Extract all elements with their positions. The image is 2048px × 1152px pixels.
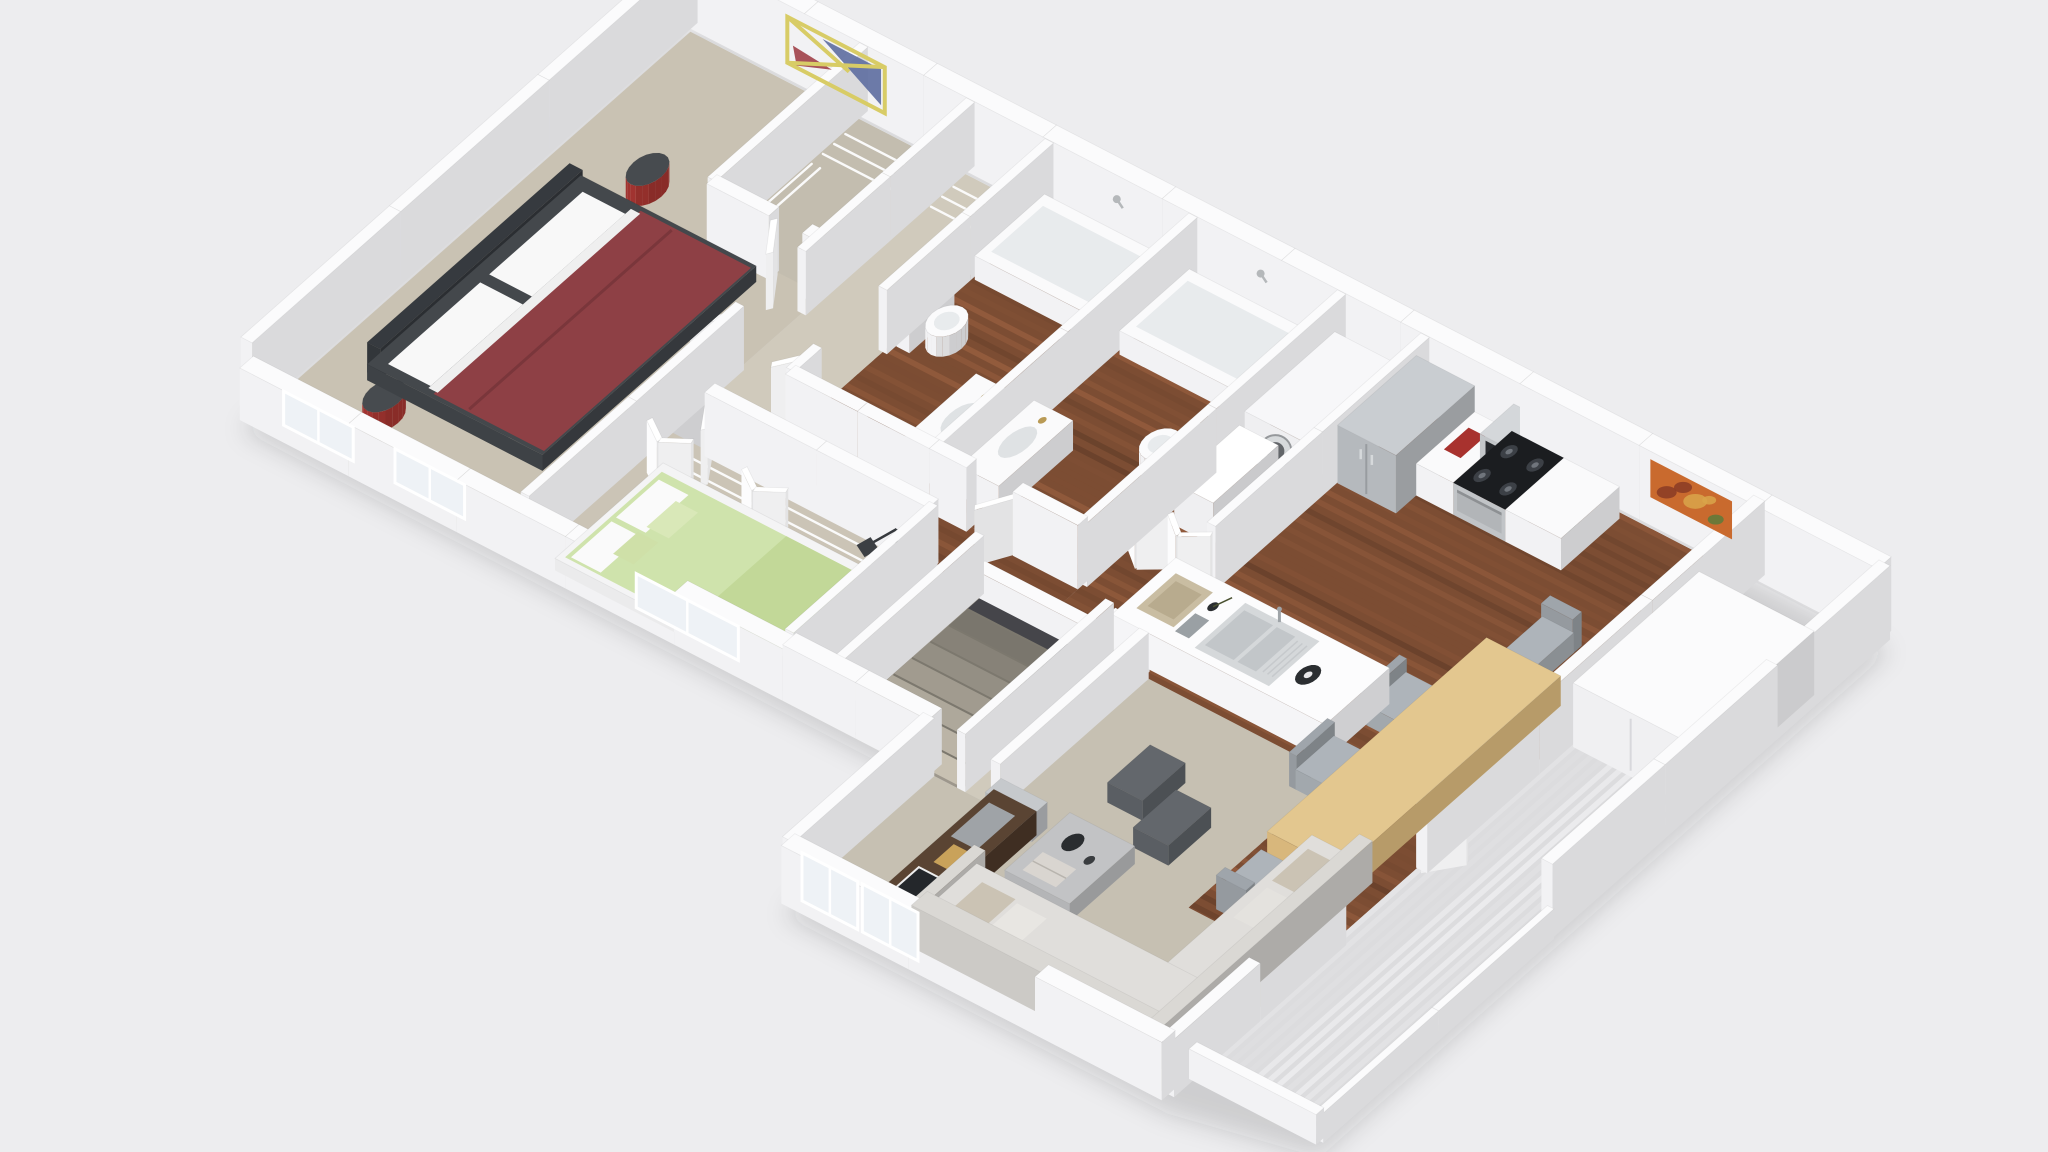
floorplan-scene [0, 0, 2048, 1152]
floorplan-3d-render [0, 0, 2048, 1152]
